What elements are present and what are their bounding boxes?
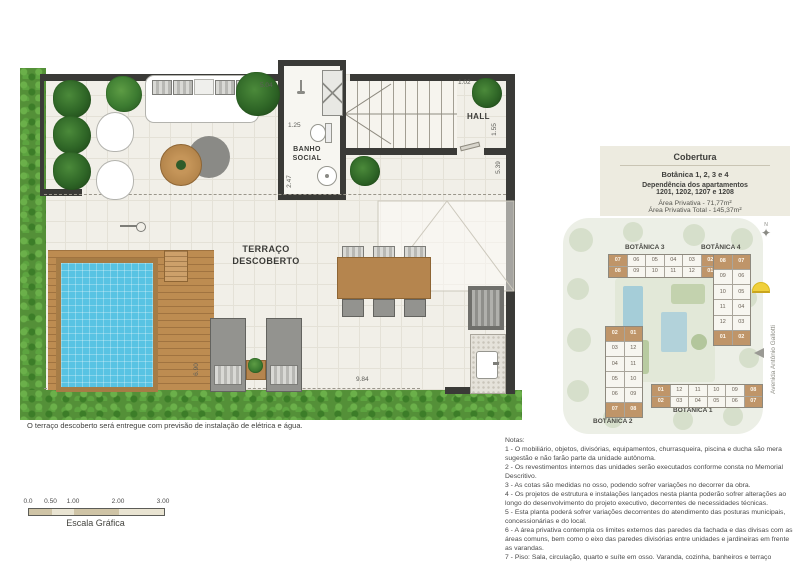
plan-caption: O terraço descoberto será entregue com p…: [27, 421, 303, 430]
notes-list: 1 - O mobiliário, objetos, divisórias, e…: [505, 446, 798, 561]
unit-cell: 01: [652, 385, 670, 396]
plant-icon: [53, 116, 91, 154]
tree-icon: [567, 380, 589, 402]
unit-cell: 04: [689, 397, 707, 408]
sink-icon: [476, 351, 498, 379]
dim-hall-right-upper: 1.55: [491, 123, 498, 136]
unit-cell: 05: [606, 372, 624, 386]
info-area-privativa: Área Privativa - 71,77m²: [600, 200, 790, 207]
courtyard-pool: [661, 312, 687, 352]
unit-cell: 11: [665, 267, 683, 278]
plant-icon: [106, 76, 142, 112]
note-item: 7 - Piso: Sala, circulação, quarto e suí…: [505, 554, 798, 561]
tree-icon: [567, 278, 589, 300]
unit-cell: 02: [652, 397, 670, 408]
dim-banho-height: 2.47: [286, 175, 293, 188]
unit-cell: 09: [628, 267, 646, 278]
plant-icon: [53, 152, 91, 190]
tree-icon: [723, 406, 743, 426]
note-item: 1 - O mobiliário, objetos, divisórias, e…: [505, 446, 798, 464]
north-indicator: N ✦: [758, 222, 774, 238]
unit-cell: 03: [671, 397, 689, 408]
building-label-botanica-2: BOTÂNICA 2: [593, 418, 632, 425]
unit-cell: 12: [625, 342, 643, 356]
unit-cell: 06: [726, 397, 744, 408]
unit-cell: 02: [733, 331, 751, 345]
scale-tick-label: 0.50: [44, 498, 57, 505]
dining-chair: [342, 299, 364, 317]
armchair: [96, 160, 134, 200]
scale-bar-segments: [28, 508, 165, 516]
dim-hall-top: 1.02: [458, 79, 471, 86]
tree-icon: [691, 334, 707, 350]
tree-icon: [567, 328, 591, 352]
scale-tick-label: 0.0: [23, 498, 32, 505]
site-plan: BOTÂNICA 3 BOTÂNICA 4 BOTÂNICA 2 BOTÂNIC…: [563, 218, 763, 434]
dim-lounge-width: 5.04: [260, 82, 273, 89]
info-subtitle: Botânica 1, 2, 3 e 4: [600, 170, 790, 179]
ducha-icon: [120, 220, 146, 232]
dining-table: [337, 257, 431, 299]
unit-cell: 11: [714, 300, 732, 314]
info-rule: [620, 165, 770, 166]
building-botanica-1: 011211100908020304050607: [651, 384, 763, 408]
unit-cell: 12: [671, 385, 689, 396]
info-title: Cobertura: [600, 152, 790, 162]
unit-cell: 02: [606, 327, 624, 341]
plant-icon: [472, 78, 502, 108]
hedge-bottom: [20, 390, 522, 420]
unit-cell: 06: [606, 388, 624, 402]
plant-icon: [53, 80, 91, 118]
scale-bar: 0.00.501.002.003.00 Escala Gráfica: [28, 498, 163, 528]
sun-icon: [752, 282, 770, 293]
wall: [40, 74, 44, 196]
building-label-botanica-3: BOTÂNICA 3: [625, 244, 664, 251]
unit-cell: 01: [625, 327, 643, 341]
info-apartments: 1201, 1202, 1207 e 1208: [600, 189, 790, 196]
unit-cell: 10: [714, 285, 732, 299]
dining-chair: [373, 299, 395, 317]
unit-cell: 08: [625, 403, 643, 417]
scale-segment: [74, 509, 119, 515]
unit-cell: 05: [708, 397, 726, 408]
scale-tick-label: 3.00: [157, 498, 170, 505]
unit-cell: 12: [683, 267, 701, 278]
plant-icon: [236, 72, 280, 116]
unit-cell: 04: [665, 255, 683, 266]
building-label-botanica-1: BOTÂNICA 1: [673, 407, 712, 414]
hall-label: HALL: [467, 112, 490, 121]
scale-labels: 0.00.501.002.003.00: [28, 498, 163, 507]
scale-caption: Escala Gráfica: [28, 518, 163, 528]
scale-segment: [119, 509, 164, 515]
pool: [56, 258, 158, 392]
plant-icon: [248, 358, 263, 373]
unit-cell: 05: [646, 255, 664, 266]
lounge-chair: [266, 318, 302, 392]
unit-cell: 04: [733, 300, 751, 314]
stair-break-lines: [345, 81, 457, 148]
unit-cell: 10: [646, 267, 664, 278]
notes-block: Notas: 1 - O mobiliário, objetos, divisó…: [505, 437, 798, 561]
dim-banho-width: 1.25: [288, 122, 301, 129]
scale-segment: [29, 509, 52, 515]
unit-cell: 08: [609, 267, 627, 278]
info-box: Cobertura Botânica 1, 2, 3 e 4 Dependênc…: [600, 146, 790, 216]
unit-cell: 11: [689, 385, 707, 396]
scale-tick-label: 2.00: [112, 498, 125, 505]
shower-icon: [296, 80, 306, 96]
dining-chair: [404, 299, 426, 317]
grill-icon: [468, 286, 504, 330]
wall: [345, 148, 457, 155]
notes-title: Notas:: [505, 437, 798, 446]
info-area-total: Área Privativa Total - 145,37m²: [600, 207, 790, 214]
coffee-table: [160, 144, 202, 186]
unit-cell: 01: [714, 331, 732, 345]
duct-shaft: [322, 70, 343, 116]
building-label-botanica-4: BOTÂNICA 4: [701, 244, 740, 251]
tree-icon: [623, 222, 643, 242]
unit-cell: 07: [606, 403, 624, 417]
north-star-icon: ✦: [758, 228, 774, 238]
counter: [470, 334, 506, 394]
unit-cell: 10: [708, 385, 726, 396]
unit-cell: 09: [714, 270, 732, 284]
entrance-arrow-icon: [754, 348, 764, 358]
building-botanica-4: 080709061005110412030102: [713, 254, 751, 346]
unit-cell: 06: [628, 255, 646, 266]
tree-icon: [569, 228, 593, 252]
sink-icon: [317, 166, 337, 186]
unit-cell: 03: [683, 255, 701, 266]
courtyard-lawn: [671, 284, 705, 304]
lounge-chair: [210, 318, 246, 392]
note-item: 6 - A área privativa contempla os limite…: [505, 527, 798, 554]
street-label: Avenida Antônio Gallotti: [770, 294, 777, 394]
toilet-icon: [310, 122, 332, 142]
unit-cell: 05: [733, 285, 751, 299]
armchair: [96, 112, 134, 152]
unit-cell: 08: [714, 255, 732, 269]
stairs: [345, 81, 457, 148]
unit-cell: 10: [625, 372, 643, 386]
dim-hall-right-lower: 5.39: [495, 161, 502, 174]
wall: [484, 148, 508, 155]
terrace-label: TERRAÇO DESCOBERTO: [212, 244, 320, 267]
note-item: 2 - Os revestimentos internos das unidad…: [505, 464, 798, 482]
note-item: 3 - As cotas são medidas no osso, podend…: [505, 482, 798, 491]
unit-cell: 09: [726, 385, 744, 396]
banho-social-label: BANHO SOCIAL: [284, 146, 330, 164]
floor-plan: BANHO SOCIAL 1.25 2.47 HALL: [20, 60, 522, 426]
unit-cell: 07: [609, 255, 627, 266]
unit-cell: 06: [733, 270, 751, 284]
dim-deck-height: 6.90: [193, 363, 200, 376]
plant-icon: [350, 156, 380, 186]
unit-cell: 08: [745, 385, 763, 396]
deck-step: [164, 250, 188, 282]
banho-social-room: BANHO SOCIAL 1.25 2.47: [278, 60, 346, 200]
note-item: 4 - Os projetos de estrutura e instalaçõ…: [505, 491, 798, 509]
unit-cell: 07: [733, 255, 751, 269]
building-botanica-3: 070605040302080910111201: [608, 254, 720, 278]
scale-tick-label: 1.00: [67, 498, 80, 505]
dim-terrace-width: 9.84: [356, 376, 369, 383]
info-dependencia: Dependência dos apartamentos: [600, 182, 790, 189]
building-botanica-2: 020103120411051006090708: [605, 326, 643, 418]
unit-cell: 09: [625, 388, 643, 402]
floorplan-sheet: BANHO SOCIAL 1.25 2.47 HALL: [0, 0, 800, 561]
unit-cell: 11: [625, 357, 643, 371]
scale-segment: [52, 509, 75, 515]
note-item: 5 - Esta planta poderá sofrer variações …: [505, 509, 798, 527]
unit-cell: 12: [714, 316, 732, 330]
tree-icon: [683, 224, 705, 246]
unit-cell: 03: [733, 316, 751, 330]
unit-cell: 04: [606, 357, 624, 371]
unit-cell: 07: [745, 397, 763, 408]
unit-cell: 03: [606, 342, 624, 356]
